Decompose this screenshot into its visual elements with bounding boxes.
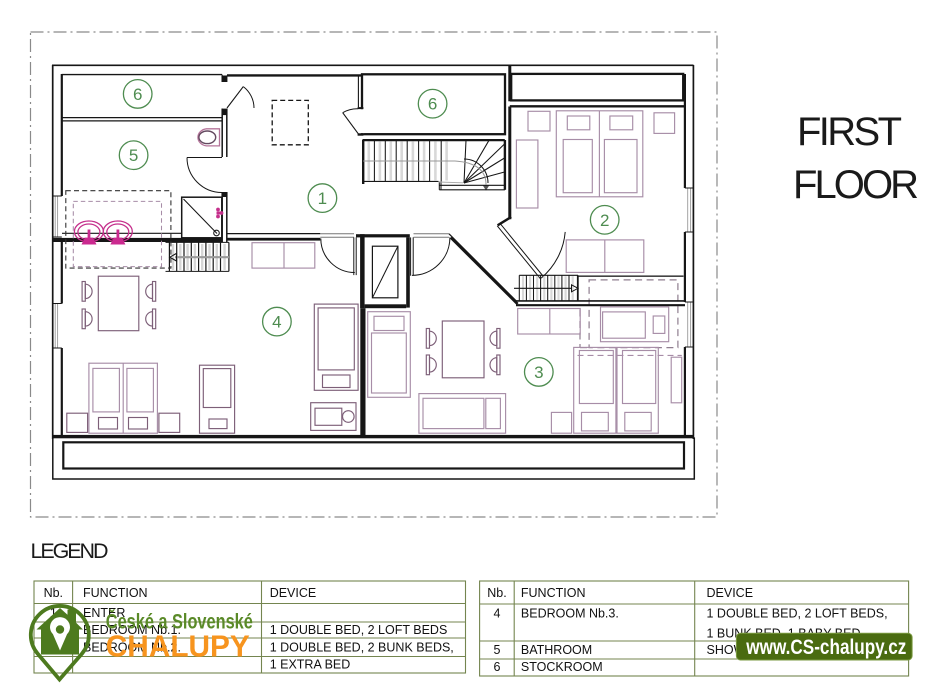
svg-text:6: 6 bbox=[494, 660, 501, 674]
svg-text:www.CS-chalupy.cz: www.CS-chalupy.cz bbox=[746, 635, 907, 659]
svg-text:FIRST: FIRST bbox=[797, 110, 902, 154]
svg-text:STOCKROOM: STOCKROOM bbox=[521, 660, 603, 674]
svg-text:Nb.: Nb. bbox=[487, 586, 506, 600]
svg-text:DEVICE: DEVICE bbox=[270, 586, 317, 600]
svg-text:5: 5 bbox=[129, 146, 138, 165]
svg-text:LEGEND: LEGEND bbox=[31, 539, 109, 563]
svg-text:BATHROOM: BATHROOM bbox=[521, 643, 592, 657]
svg-text:FLOOR: FLOOR bbox=[793, 163, 919, 207]
svg-text:4: 4 bbox=[272, 313, 281, 332]
svg-text:FUNCTION: FUNCTION bbox=[83, 586, 148, 600]
svg-text:DEVICE: DEVICE bbox=[707, 586, 754, 600]
svg-text:2: 2 bbox=[600, 211, 609, 230]
svg-text:1: 1 bbox=[318, 189, 327, 208]
svg-text:3: 3 bbox=[534, 363, 543, 382]
svg-text:1 DOUBLE BED, 2 BUNK BEDS,: 1 DOUBLE BED, 2 BUNK BEDS, bbox=[270, 641, 454, 655]
svg-text:BEDROOM Nb.3.: BEDROOM Nb.3. bbox=[521, 607, 619, 621]
svg-text:4: 4 bbox=[494, 607, 501, 621]
svg-text:1 DOUBLE BED, 2 LOFT BEDS,: 1 DOUBLE BED, 2 LOFT BEDS, bbox=[707, 607, 888, 621]
svg-text:Nb.: Nb. bbox=[44, 586, 63, 600]
svg-text:1 EXTRA BED: 1 EXTRA BED bbox=[270, 658, 351, 672]
svg-text:6: 6 bbox=[133, 85, 142, 104]
svg-text:CHALUPY: CHALUPY bbox=[106, 628, 250, 663]
svg-text:FUNCTION: FUNCTION bbox=[521, 586, 586, 600]
svg-text:5: 5 bbox=[494, 643, 501, 657]
svg-text:6: 6 bbox=[428, 95, 437, 114]
svg-text:1 DOUBLE BED, 2 LOFT BEDS: 1 DOUBLE BED, 2 LOFT BEDS bbox=[270, 623, 448, 637]
